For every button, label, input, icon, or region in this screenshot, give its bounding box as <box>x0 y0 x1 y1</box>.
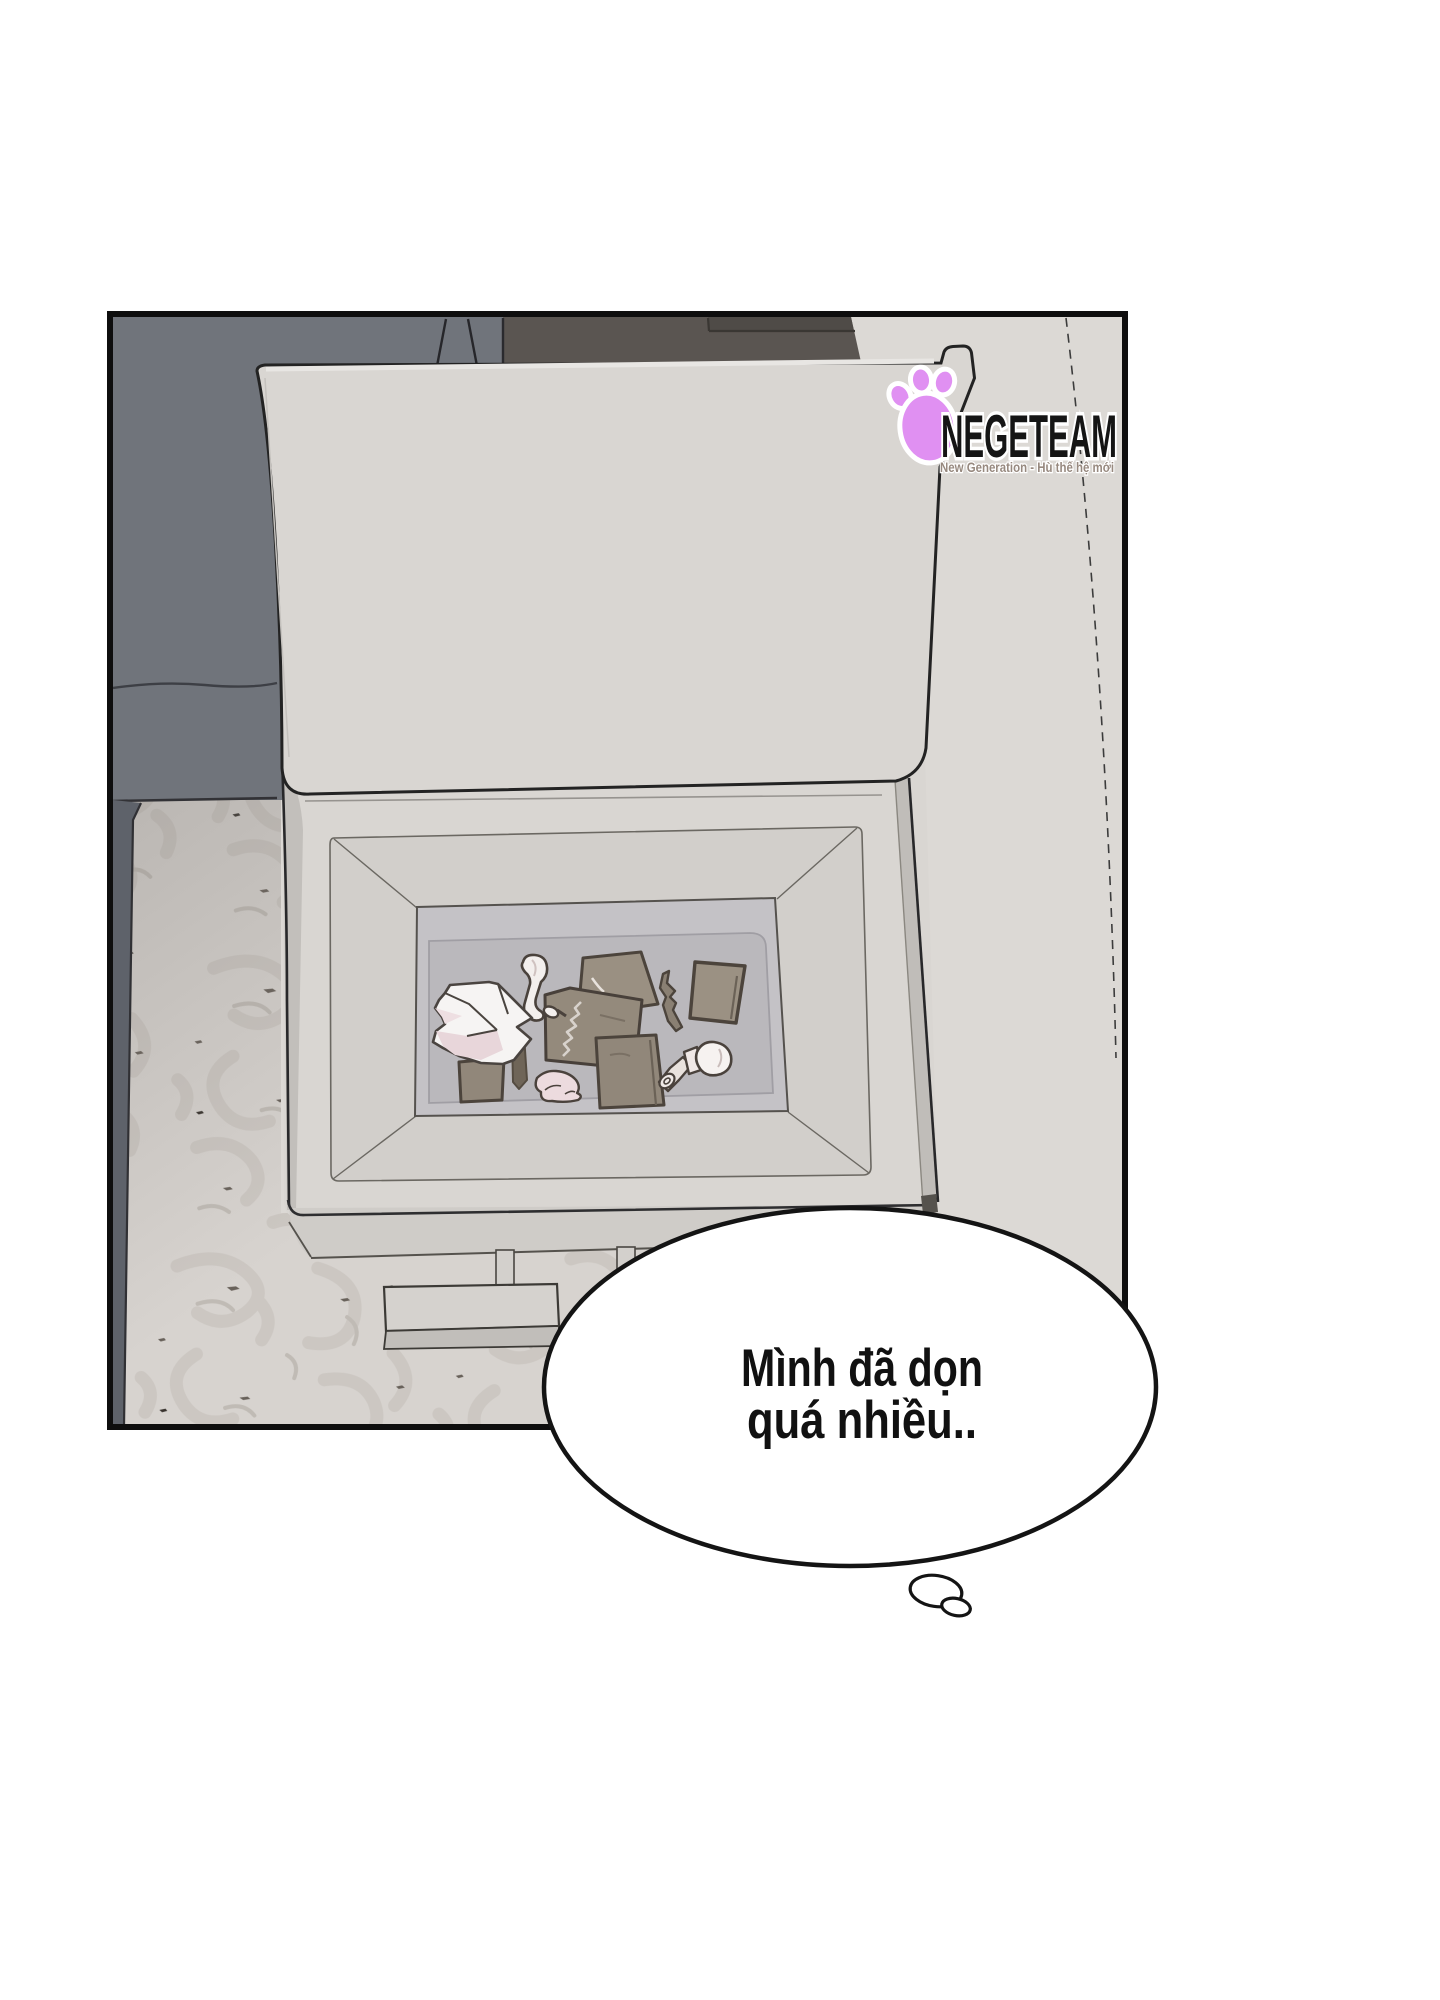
svg-text:quá nhiều..: quá nhiều.. <box>747 1391 977 1450</box>
svg-text:Mình đã dọn: Mình đã dọn <box>741 1339 983 1398</box>
svg-text:New Generation - Hù thế hệ mới: New Generation - Hù thế hệ mới <box>940 459 1114 475</box>
